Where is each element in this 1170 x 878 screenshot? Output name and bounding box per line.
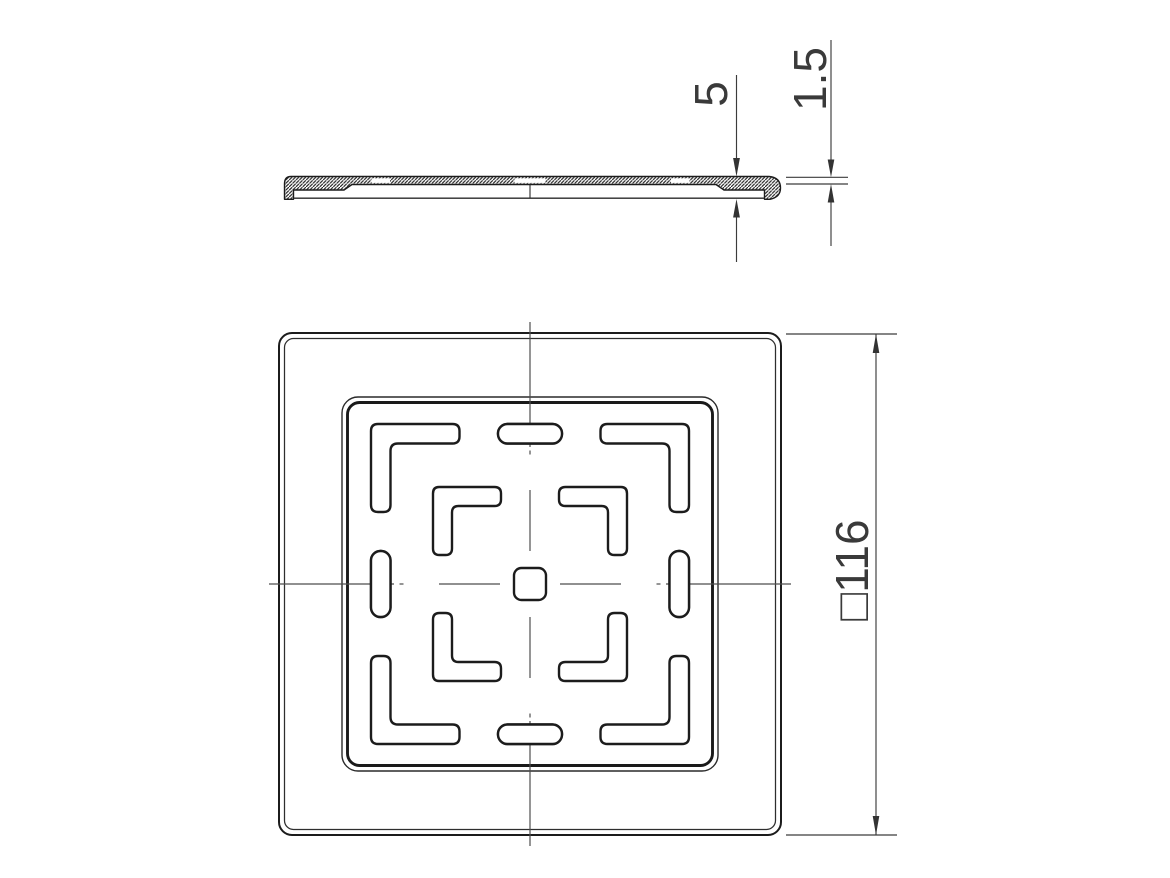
arrow-down-icon — [828, 160, 835, 178]
dimension-label-plate-thickness: 1.5 — [784, 47, 836, 111]
dimension-plate-thickness: 1.5 — [784, 40, 848, 246]
technical-drawing-canvas: 5 1.5 — [0, 0, 1170, 878]
arrow-up-icon — [873, 334, 880, 353]
dimension-label-overall-thickness: 5 — [685, 81, 737, 107]
arrow-down-icon — [873, 816, 880, 835]
dimension-outer-size: □116 — [786, 334, 897, 835]
arrow-up-icon — [828, 184, 835, 203]
dimension-label-outer-size: □116 — [826, 519, 878, 620]
arrow-down-icon — [733, 158, 740, 177]
top-plan-view — [269, 322, 791, 846]
side-section-view — [285, 177, 781, 200]
dimension-overall-thickness: 5 — [685, 75, 740, 262]
arrow-up-icon — [733, 199, 740, 218]
center-square-slot — [514, 568, 546, 600]
technical-drawing-page: 5 1.5 — [0, 0, 1170, 878]
